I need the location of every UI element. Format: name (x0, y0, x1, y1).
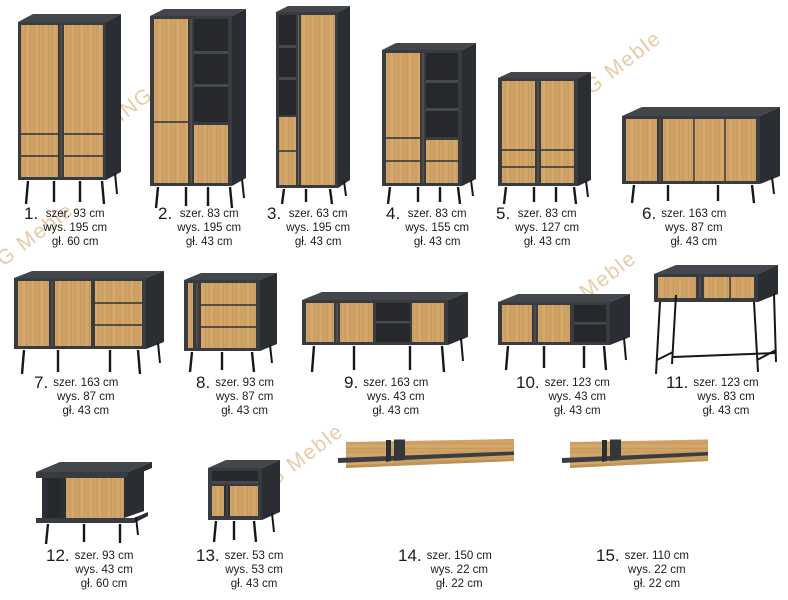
item-label-6: 6. szer. 163 cm wys. 87 cm gł. 43 cm (642, 207, 726, 249)
item-dim-depth: gł. 43 cm (524, 235, 571, 249)
furniture-4-highboard-shelves (378, 40, 486, 208)
item-dim-width: szer. 163 cm (53, 376, 118, 390)
item-dim-width: szer. 123 cm (545, 376, 610, 390)
item-dim-height: wys. 195 cm (43, 221, 107, 235)
item-dim-width: szer. 93 cm (215, 376, 274, 390)
item-dim-width: szer. 83 cm (408, 207, 467, 221)
item-dim-width: szer. 163 cm (661, 207, 726, 221)
furniture-9-tv-stand-large (298, 288, 472, 380)
item-number: 1. (24, 206, 38, 221)
item-number: 9. (344, 375, 358, 390)
furniture-12-coffee-table (32, 456, 160, 550)
item-number: 10. (516, 375, 540, 390)
item-dim-height: wys. 87 cm (216, 390, 274, 404)
item-dim-depth: gł. 22 cm (633, 577, 680, 591)
item-dim-depth: gł. 43 cm (554, 404, 601, 418)
item-dim-height: wys. 22 cm (430, 563, 488, 577)
furniture-8-chest-of-drawers (180, 266, 286, 378)
item-dim-height: wys. 87 cm (57, 390, 115, 404)
item-number: 6. (642, 206, 656, 221)
item-dim-width: szer. 163 cm (363, 376, 428, 390)
item-dim-depth: gł. 43 cm (186, 235, 233, 249)
item-label-9: 9. szer. 163 cm wys. 43 cm gł. 43 cm (344, 376, 428, 418)
item-label-10: 10. szer. 123 cm wys. 43 cm gł. 43 cm (516, 376, 610, 418)
item-number: 13. (196, 548, 220, 563)
item-dim-width: szer. 63 cm (289, 207, 348, 221)
item-number: 15. (596, 548, 620, 563)
item-label-3: 3. szer. 63 cm wys. 195 cm gł. 43 cm (267, 207, 350, 249)
furniture-14-wall-shelf (338, 432, 524, 480)
furniture-11-console-table (648, 260, 788, 378)
item-dim-depth: gł. 22 cm (436, 577, 483, 591)
item-dim-width: szer. 83 cm (180, 207, 239, 221)
item-dim-depth: gł. 60 cm (52, 235, 99, 249)
item-dim-height: wys. 53 cm (225, 563, 283, 577)
item-dim-depth: gł. 43 cm (703, 404, 750, 418)
item-dim-width: szer. 123 cm (693, 376, 758, 390)
item-label-14: 14. szer. 150 cm wys. 22 cm gł. 22 cm (398, 549, 492, 591)
item-dim-width: szer. 93 cm (75, 549, 134, 563)
item-dim-depth: gł. 43 cm (221, 404, 268, 418)
item-number: 3. (267, 206, 281, 221)
item-dim-width: szer. 53 cm (225, 549, 284, 563)
item-dim-height: wys. 83 cm (697, 390, 755, 404)
item-dim-width: szer. 150 cm (427, 549, 492, 563)
furniture-10-tv-stand-small (494, 290, 638, 380)
furniture-5-highboard-2-door (494, 68, 600, 208)
item-dim-width: szer. 83 cm (518, 207, 577, 221)
furniture-15-wall-shelf (562, 432, 718, 480)
furniture-1-wardrobe-2-door (14, 8, 129, 208)
item-dim-height: wys. 195 cm (286, 221, 350, 235)
item-dim-height: wys. 127 cm (515, 221, 579, 235)
item-dim-height: wys. 195 cm (177, 221, 241, 235)
item-dim-depth: gł. 43 cm (372, 404, 419, 418)
item-number: 11. (666, 375, 688, 390)
item-label-5: 5. szer. 83 cm wys. 127 cm gł. 43 cm (496, 207, 579, 249)
item-number: 12. (46, 548, 70, 563)
item-dim-depth: gł. 43 cm (231, 577, 278, 591)
item-label-4: 4. szer. 83 cm wys. 155 cm gł. 43 cm (386, 207, 469, 249)
item-label-15: 15. szer. 110 cm wys. 22 cm gł. 22 cm (596, 549, 689, 591)
item-label-7: 7. szer. 163 cm wys. 87 cm gł. 43 cm (34, 376, 118, 418)
item-dim-depth: gł. 43 cm (670, 235, 717, 249)
item-dim-height: wys. 87 cm (665, 221, 723, 235)
item-number: 7. (34, 375, 48, 390)
item-number: 14. (398, 548, 422, 563)
item-dim-depth: gł. 43 cm (295, 235, 342, 249)
item-label-12: 12. szer. 93 cm wys. 43 cm gł. 60 cm (46, 549, 133, 591)
item-dim-height: wys. 43 cm (548, 390, 606, 404)
item-label-1: 1. szer. 93 cm wys. 195 cm gł. 60 cm (24, 207, 107, 249)
item-dim-width: szer. 110 cm (625, 549, 689, 563)
item-dim-depth: gł. 43 cm (414, 235, 461, 249)
item-dim-height: wys. 43 cm (367, 390, 425, 404)
item-label-2: 2. szer. 83 cm wys. 195 cm gł. 43 cm (158, 207, 241, 249)
furniture-catalog-sheet: KING Meble KING Meble KING Meble KING Me… (0, 0, 788, 600)
item-number: 4. (386, 206, 400, 221)
furniture-7-sideboard-doors-drawers (10, 264, 170, 378)
item-dim-height: wys. 43 cm (75, 563, 133, 577)
item-dim-width: szer. 93 cm (46, 207, 105, 221)
item-label-8: 8. szer. 93 cm wys. 87 cm gł. 43 cm (196, 376, 274, 418)
item-number: 8. (196, 375, 210, 390)
item-number: 2. (158, 206, 172, 221)
item-dim-depth: gł. 43 cm (62, 404, 109, 418)
item-dim-height: wys. 22 cm (628, 563, 686, 577)
item-dim-depth: gł. 60 cm (81, 577, 128, 591)
furniture-2-bookcase-display (146, 6, 258, 208)
item-number: 5. (496, 206, 510, 221)
furniture-13-bedside-cabinet (204, 452, 292, 550)
item-label-13: 13. szer. 53 cm wys. 53 cm gł. 43 cm (196, 549, 283, 591)
item-dim-height: wys. 155 cm (405, 221, 469, 235)
furniture-6-sideboard-large (618, 100, 784, 208)
item-label-11: 11. szer. 123 cm wys. 83 cm gł. 43 cm (666, 376, 759, 418)
furniture-3-bookcase-narrow (272, 4, 364, 206)
